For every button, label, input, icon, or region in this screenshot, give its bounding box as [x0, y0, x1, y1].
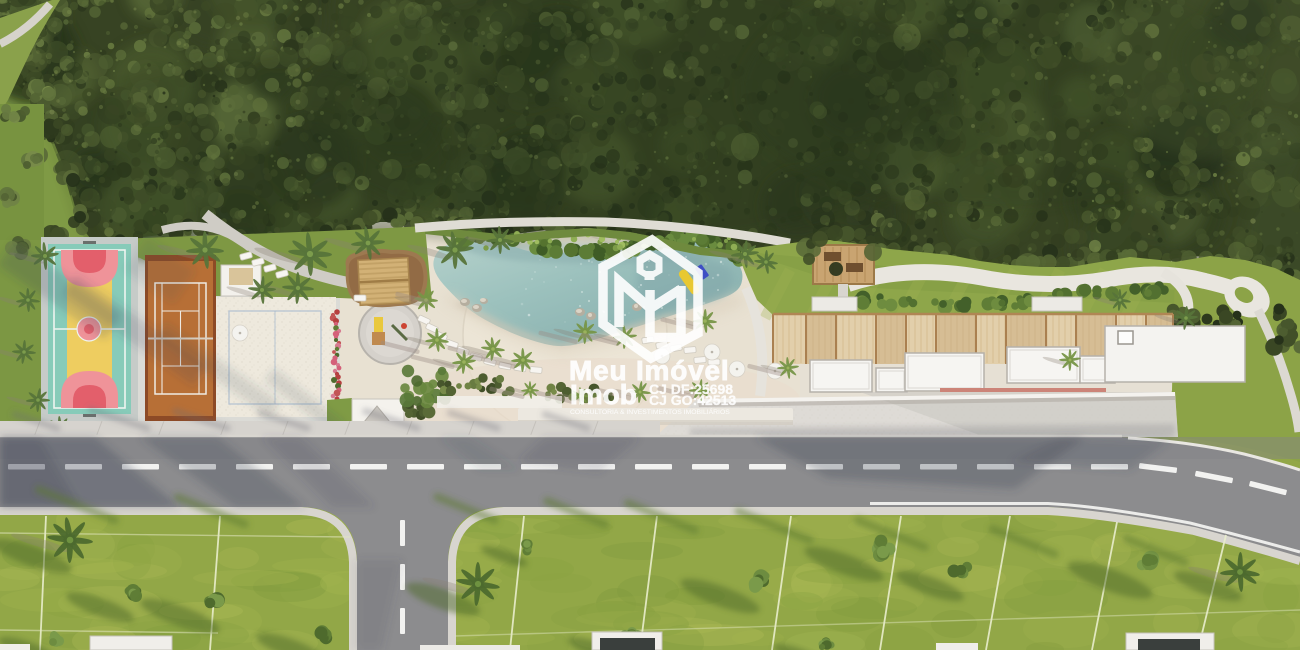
svg-text:CONSULTORIA & INVESTIMENTOS IM: CONSULTORIA & INVESTIMENTOS IMOBILIÁRIOS [570, 407, 730, 416]
svg-text:CJ GO:42513: CJ GO:42513 [649, 392, 736, 408]
svg-text:Imob: Imob [570, 379, 637, 410]
